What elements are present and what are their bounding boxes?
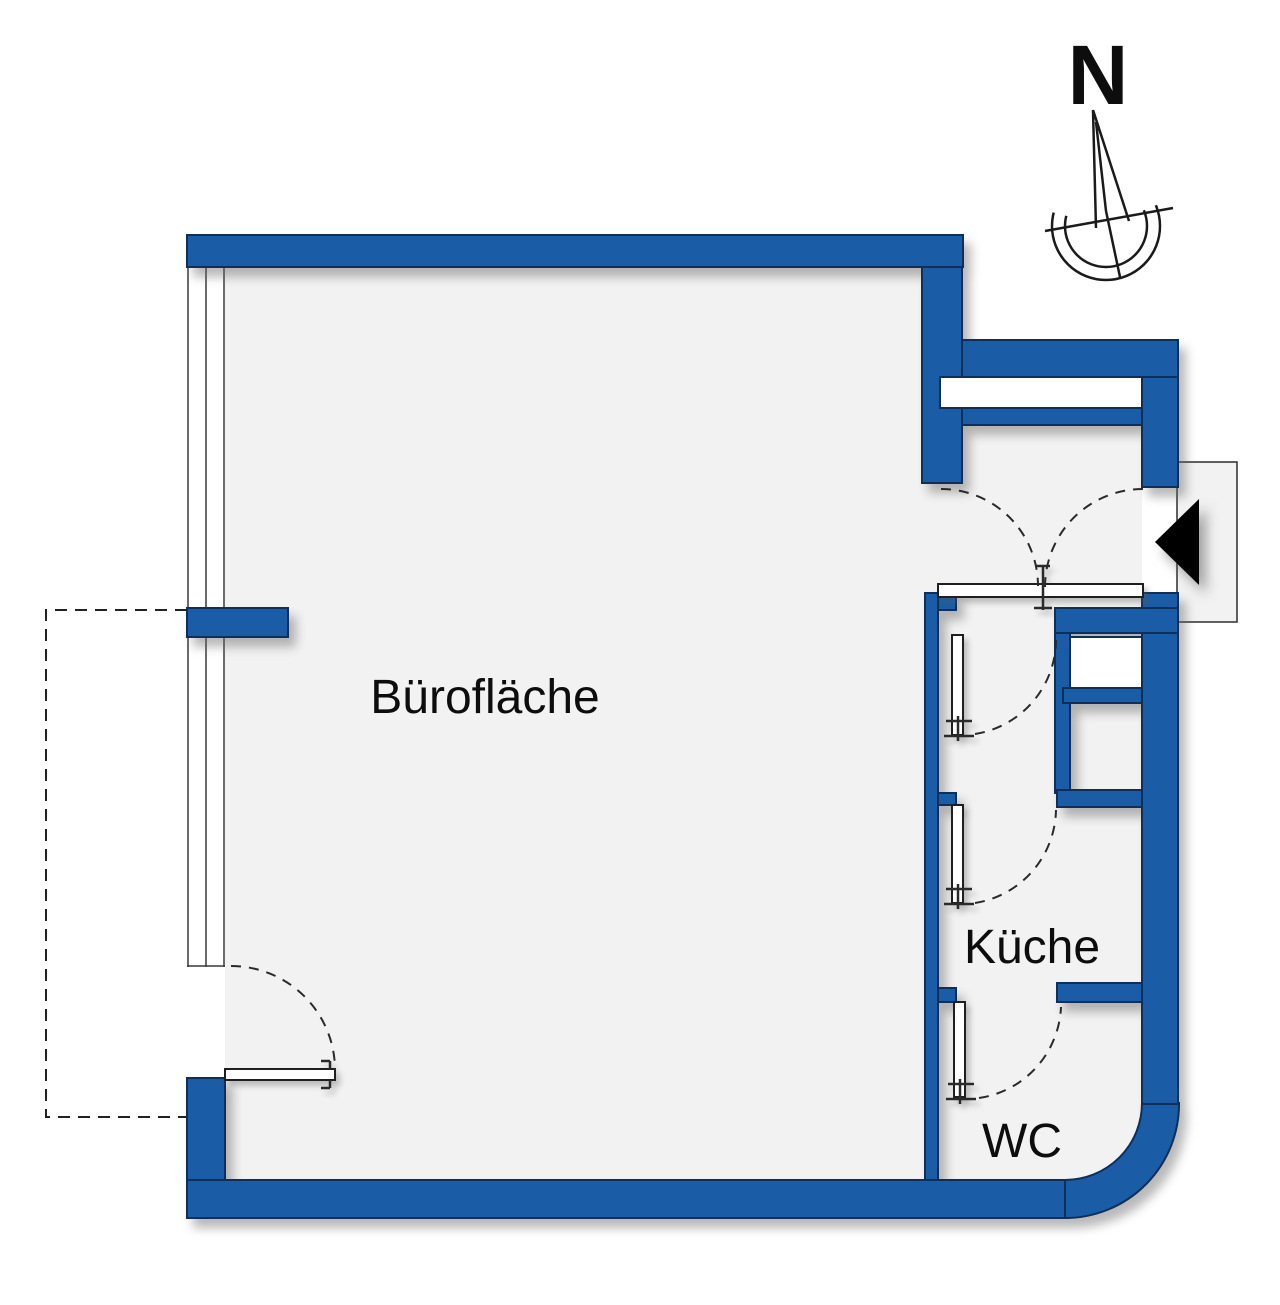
wall-corner-left xyxy=(187,1078,225,1182)
wall-air-slot xyxy=(940,377,1142,408)
shaft-opening xyxy=(1070,637,1142,688)
wall-rooms-left xyxy=(925,593,938,1180)
corridor-floor xyxy=(922,483,1142,595)
wc-label: WC xyxy=(982,1115,1062,1168)
north-compass-icon: N xyxy=(1028,28,1178,280)
entry-door-leaf xyxy=(938,584,1143,597)
wall-office-right-upper xyxy=(922,267,962,483)
wall-top xyxy=(187,235,963,267)
wall-wc-divider xyxy=(1057,983,1142,1002)
wall-outer-right-upper xyxy=(1142,377,1178,487)
wall-left-stub xyxy=(187,608,288,637)
floor-plan-drawing: Bürofläche Küche WC N xyxy=(0,0,1280,1305)
wall-vestibule-right xyxy=(1055,633,1070,793)
office-label: Bürofläche xyxy=(370,671,599,724)
north-letter: N xyxy=(1068,28,1129,122)
floor-plan: Bürofläche Küche WC N xyxy=(0,0,1280,1305)
balcony-door-leaf xyxy=(225,1069,335,1080)
wall-stub-kitchen xyxy=(938,793,956,805)
wall-kitchen-divider xyxy=(1057,790,1142,807)
wall-outer-right-lower xyxy=(1142,593,1178,1104)
entry-floor xyxy=(962,425,1142,487)
wall-bottom xyxy=(187,1180,1065,1218)
wall-stub-wc xyxy=(938,988,956,1002)
wall-shaft-bottom xyxy=(1063,688,1142,703)
kitchen-label: Küche xyxy=(964,921,1100,974)
wall-shaft-top xyxy=(1055,608,1178,633)
balcony-outline xyxy=(46,610,187,1117)
